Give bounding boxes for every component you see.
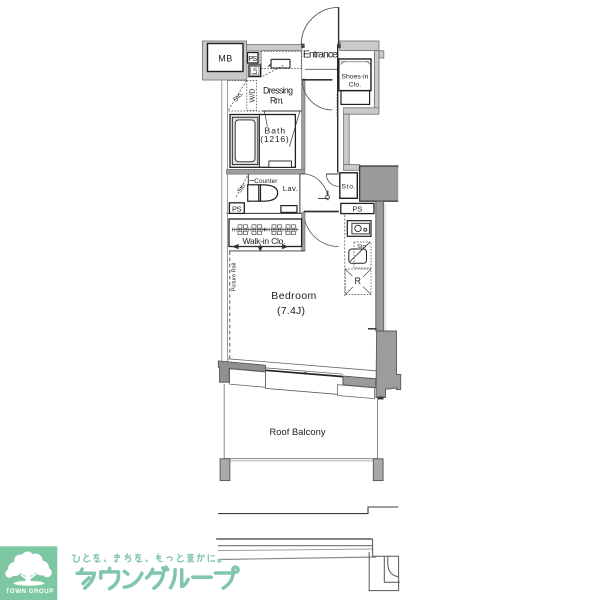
svg-text:Lav.: Lav.	[283, 184, 298, 193]
svg-text:Sto.: Sto.	[342, 183, 356, 190]
svg-text:W/D: W/D	[247, 89, 256, 103]
svg-text:Clo.: Clo.	[349, 82, 362, 89]
svg-text:TOWN GROUP: TOWN GROUP	[6, 588, 54, 595]
svg-text:Shoes-in: Shoes-in	[341, 73, 368, 80]
svg-text:Walk-in Clo.: Walk-in Clo.	[243, 236, 286, 246]
svg-text:(7.4J): (7.4J)	[277, 305, 305, 317]
svg-text:PS: PS	[232, 204, 242, 213]
svg-text:PS: PS	[248, 54, 257, 63]
svg-text:Counter: Counter	[254, 178, 277, 185]
svg-text:Entrance: Entrance	[303, 49, 338, 61]
svg-text:Roof Balcony: Roof Balcony	[270, 427, 326, 437]
svg-text:(1216): (1216)	[260, 134, 289, 144]
svg-text:PS: PS	[352, 205, 362, 214]
svg-text:Rm.: Rm.	[270, 96, 284, 106]
svg-text:R: R	[355, 276, 362, 286]
svg-text:Sto: Sto	[357, 244, 366, 250]
svg-text:MB: MB	[218, 54, 232, 64]
svg-text:Bedroom: Bedroom	[271, 290, 316, 302]
svg-text:Ln: Ln	[252, 67, 259, 74]
svg-text:Picture Rail: Picture Rail	[232, 263, 238, 292]
svg-text:Dressing: Dressing	[263, 86, 293, 96]
